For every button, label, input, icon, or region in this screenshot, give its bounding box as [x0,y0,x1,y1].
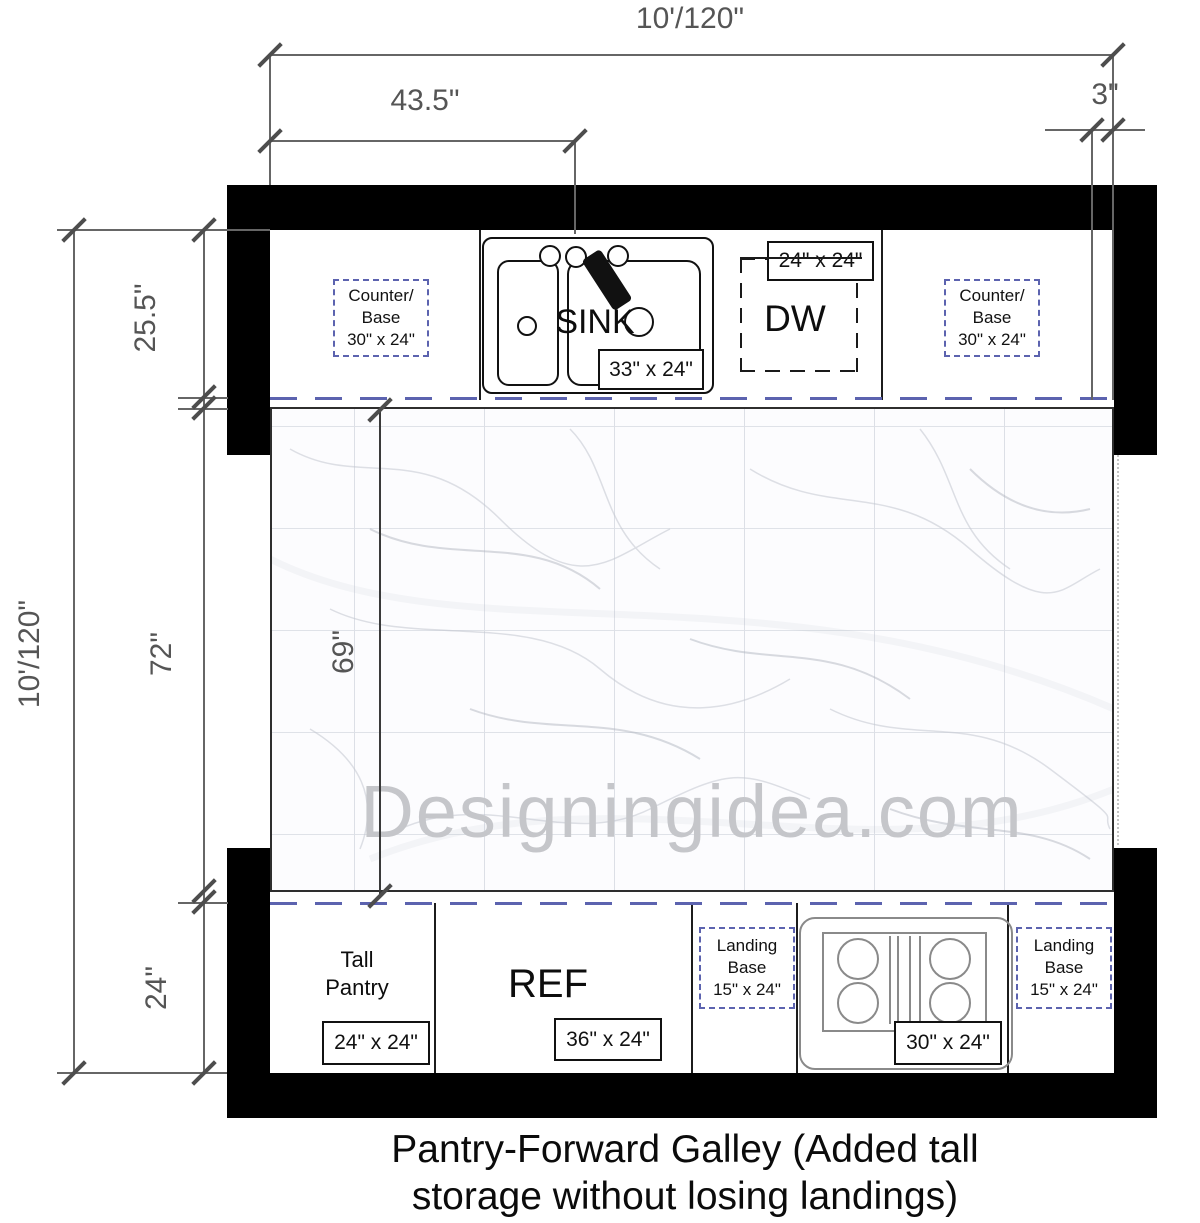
wall-right-lower [1114,848,1157,1073]
dim-label-base-depth: 24" [140,938,174,1038]
burner [837,982,879,1024]
dim-line-overall-left [73,230,75,1073]
label-line: Counter/ [348,285,413,307]
dim-line-overall-top [270,54,1113,56]
door-opening-dashed-line [1117,455,1119,845]
caption-line-1: Pantry-Forward Galley (Added tall [160,1126,1200,1173]
label-line: Base [362,307,401,329]
marble-floor: Designingidea.com [270,409,1114,892]
cabinet-divider [434,903,436,1073]
label-line: Landing [1034,935,1095,957]
counter-base-label-left: Counter/ Base 30" x 24" [333,279,429,357]
extension-line [1112,56,1114,400]
cabinet-divider [691,903,693,1073]
sink-label: SINK [535,303,655,342]
sink-drain [517,316,537,336]
wall-left-upper [227,230,270,455]
dw-box-bottom [740,370,858,372]
label-line: 30" x 24" [958,329,1026,351]
label-line: 15" x 24" [1030,979,1098,1001]
label-line: Landing [717,935,778,957]
caption-line-2: storage without losing landings) [160,1173,1200,1220]
cooktop-grate [889,936,921,1024]
dim-label-overall-top: 10'/120" [560,2,820,36]
counter-base-label-right: Counter/ Base 30" x 24" [944,279,1040,357]
sink-size-box: 33" x 24" [598,349,704,390]
counter-edge-dashed-bottom [270,902,1114,905]
wall-left-lower [227,848,270,1073]
wall-bottom [227,1073,1157,1118]
landing-base-label-right: Landing Base 15" x 24" [1016,927,1112,1009]
extension-stub [57,229,270,231]
dim-label-filler: 3" [1080,78,1130,112]
label-line: Counter/ [959,285,1024,307]
watermark: Designingidea.com [270,769,1114,854]
floor-edge-bottom [270,890,1114,892]
cooktop-size-box: 30" x 24" [894,1021,1002,1065]
label-line: Base [1045,957,1084,979]
floor-edge-left [270,409,272,892]
ref-size-box: 36" x 24" [554,1018,662,1061]
dw-box-left [740,258,742,372]
dw-label: DW [745,298,845,340]
dim-label-sink-center: 43.5" [330,84,520,118]
dim-label-aisle-width: 72" [145,604,179,704]
faucet-hole [607,245,629,267]
burner [929,982,971,1024]
label-line: 15" x 24" [713,979,781,1001]
floor-edge-top [270,407,1114,409]
faucet-hole [539,245,561,267]
counter-edge-dashed-top [270,397,1114,400]
wall-top [227,185,1157,230]
burner [837,938,879,980]
dim-label-floor-clear: 69" [327,602,361,702]
extension-line [574,142,576,234]
burner [929,938,971,980]
label-line: 30" x 24" [347,329,415,351]
cabinet-divider [479,230,481,400]
pantry-size-box: 24" x 24" [322,1021,430,1065]
cabinet-divider [796,903,798,1073]
floor-edge-right [1112,409,1114,892]
kitchen-floor-plan: Designingidea.com SINK 33" x 24" DW 24" … [0,0,1200,1223]
wall-right-upper [1114,230,1157,455]
caption: Pantry-Forward Galley (Added tall storag… [160,1126,1200,1220]
landing-base-label-left: Landing Base 15" x 24" [699,927,795,1009]
label-line: Pantry [307,974,407,1002]
label-line: Base [973,307,1012,329]
dw-size-box: 24" x 24" [767,241,874,281]
dim-line-sink-center [270,140,575,142]
extension-line [1091,131,1093,400]
dim-label-overall-left: 10'/120" [13,562,47,746]
label-line: Tall [307,946,407,974]
cabinet-divider [881,230,883,400]
dw-leader-line [740,257,862,259]
label-line: Base [728,957,767,979]
ref-label: REF [488,962,608,1007]
dim-line-left-segments [203,230,205,1073]
dim-label-counter-depth: 25.5" [129,258,163,378]
extension-line [269,56,271,185]
dim-line-floor-clear [379,409,381,898]
pantry-label: Tall Pantry [307,946,407,1002]
